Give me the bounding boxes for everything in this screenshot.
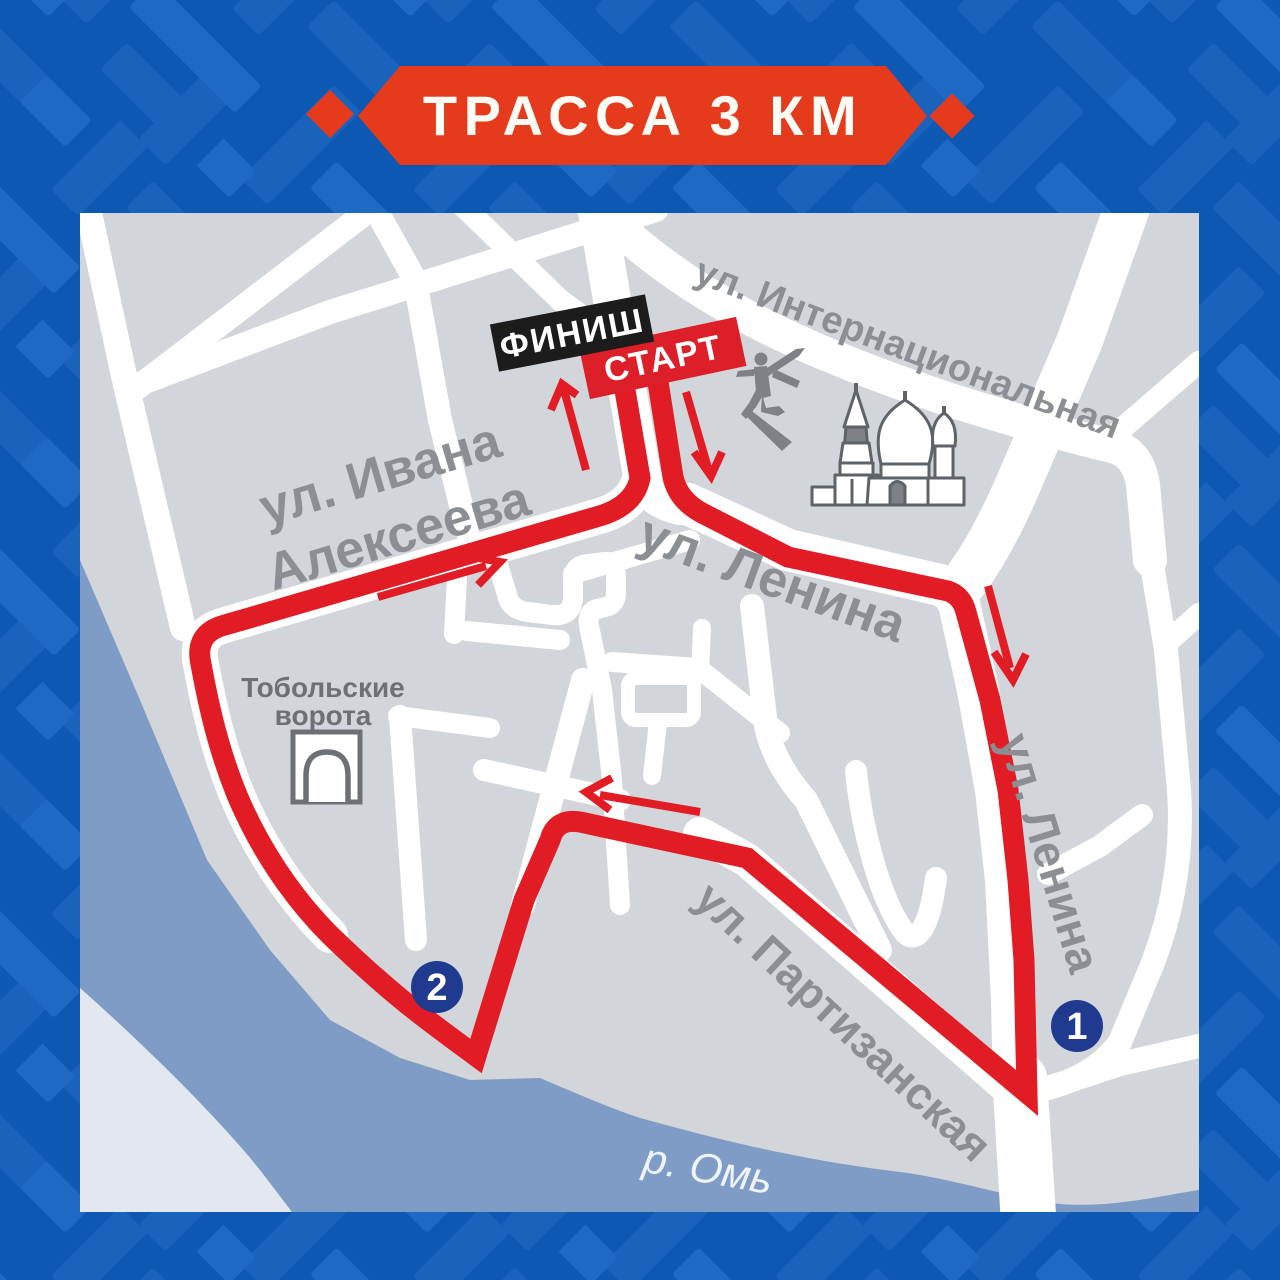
- svg-text:ТРАССА 3 КМ: ТРАССА 3 КМ: [423, 84, 863, 147]
- svg-text:ворота: ворота: [275, 700, 372, 731]
- svg-text:1: 1: [1066, 1006, 1087, 1048]
- svg-text:Тобольские: Тобольские: [241, 672, 405, 703]
- svg-text:2: 2: [426, 967, 447, 1009]
